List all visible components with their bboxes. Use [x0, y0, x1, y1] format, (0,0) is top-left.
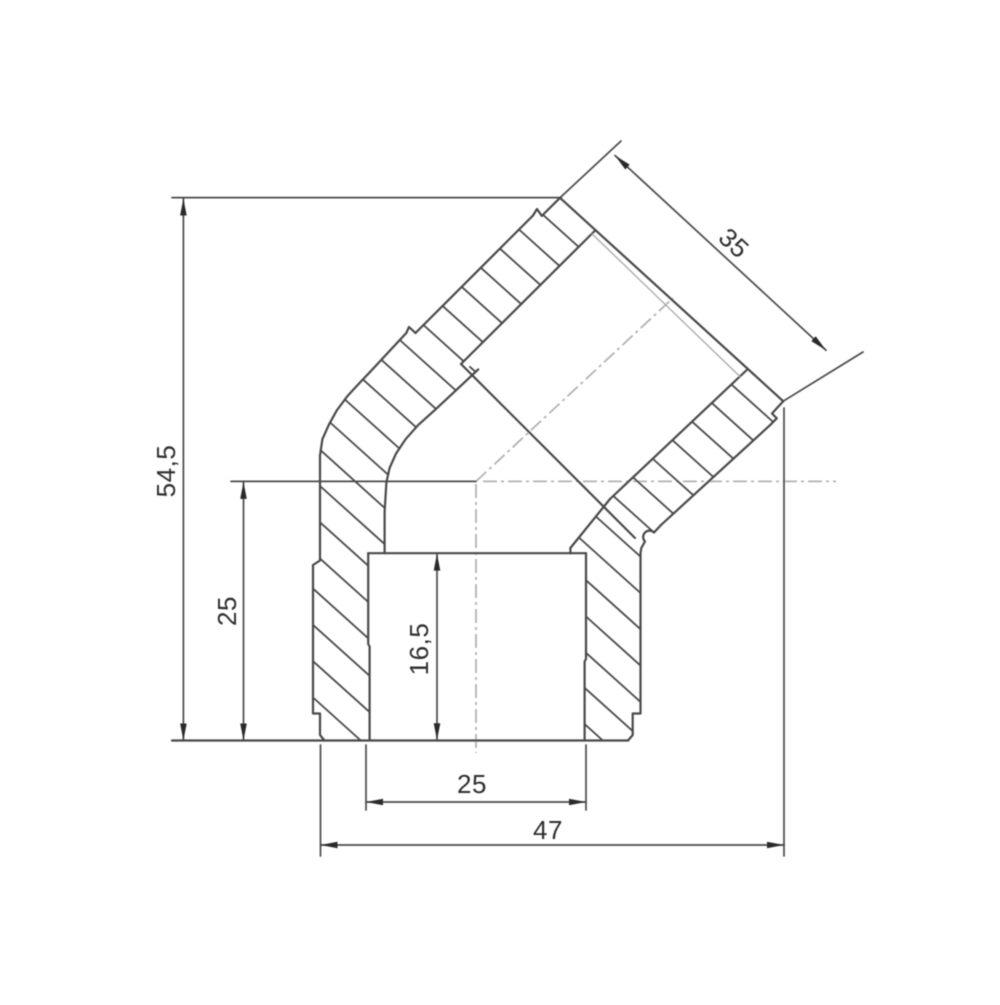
- svg-text:54,5: 54,5: [151, 445, 181, 498]
- svg-text:16,5: 16,5: [404, 623, 434, 676]
- svg-text:47: 47: [533, 815, 563, 845]
- svg-text:35: 35: [713, 222, 755, 264]
- svg-text:25: 25: [212, 596, 242, 626]
- svg-text:25: 25: [457, 769, 487, 799]
